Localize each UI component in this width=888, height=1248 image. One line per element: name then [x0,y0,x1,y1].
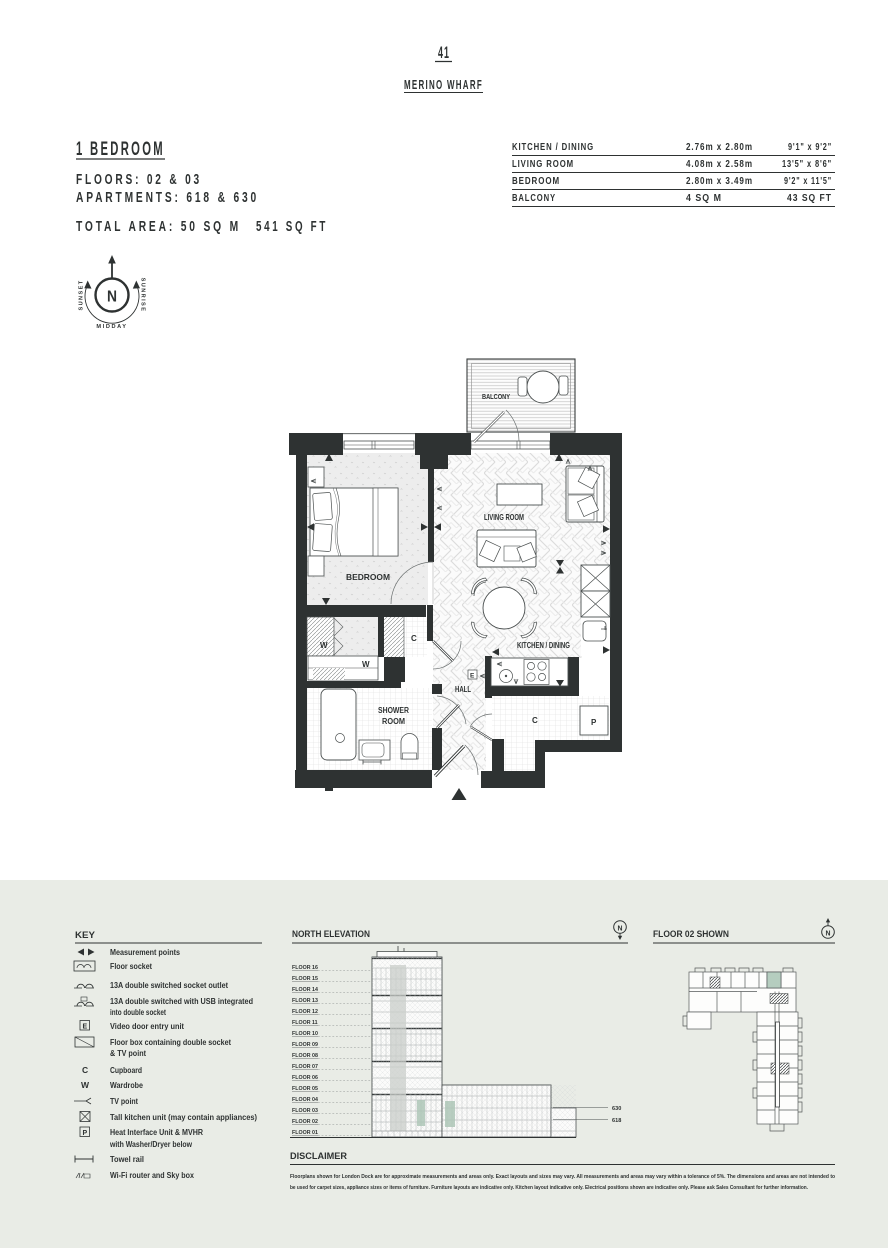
svg-text:9'2" x 11'5": 9'2" x 11'5" [784,175,832,187]
svg-text:FLOOR 13: FLOOR 13 [292,998,318,1004]
svg-text:be used for carpet sizes, appl: be used for carpet sizes, appliance size… [290,1185,808,1191]
svg-text:C: C [411,634,417,643]
svg-text:N: N [826,929,831,938]
svg-text:FLOOR 05: FLOOR 05 [292,1086,318,1092]
svg-text:13A double switched with USB i: 13A double switched with USB integrated [110,997,253,1006]
svg-text:541 SQ FT: 541 SQ FT [256,219,328,235]
svg-text:HALL: HALL [455,684,471,694]
svg-text:4 SQ M: 4 SQ M [686,192,722,204]
svg-text:N: N [107,289,117,306]
svg-text:FLOOR 16: FLOOR 16 [292,965,318,971]
svg-text:BEDROOM: BEDROOM [346,572,390,582]
svg-text:with Washer/Dryer below: with Washer/Dryer below [109,1140,193,1149]
svg-text:NORTH ELEVATION: NORTH ELEVATION [292,929,370,940]
svg-text:BALCONY: BALCONY [482,392,510,401]
svg-text:Floorplans shown for London Do: Floorplans shown for London Dock are for… [290,1174,835,1180]
svg-text:DISCLAIMER: DISCLAIMER [290,1151,347,1162]
svg-text:FLOOR 04: FLOOR 04 [292,1097,318,1103]
svg-text:FLOOR 03: FLOOR 03 [292,1108,318,1114]
svg-text:ROOM: ROOM [382,717,405,726]
svg-text:FLOOR 14: FLOOR 14 [292,987,318,993]
svg-text:2.80m x 3.49m: 2.80m x 3.49m [686,175,753,187]
svg-text:KEY: KEY [75,930,96,941]
svg-text:Measurement points: Measurement points [110,948,180,957]
svg-text:BALCONY: BALCONY [512,192,556,204]
svg-text:2.76m x 2.80m: 2.76m x 2.80m [686,141,753,153]
svg-text:E: E [83,1024,88,1031]
svg-text:13A double switched socket out: 13A double switched socket outlet [110,981,228,990]
svg-text:E: E [470,673,475,680]
svg-text:Video door entry unit: Video door entry unit [110,1022,184,1031]
svg-text:FLOOR 06: FLOOR 06 [292,1075,318,1081]
svg-text:1 BEDROOM: 1 BEDROOM [76,138,165,160]
svg-text:FLOOR 15: FLOOR 15 [292,976,318,982]
svg-text:LIVING ROOM: LIVING ROOM [512,158,574,170]
svg-text:FLOOR 10: FLOOR 10 [292,1031,318,1037]
svg-text:Cupboard: Cupboard [110,1066,142,1075]
svg-text:W: W [362,660,370,669]
svg-text:BEDROOM: BEDROOM [512,175,560,187]
svg-text:LIVING ROOM: LIVING ROOM [484,512,524,522]
svg-text:630: 630 [612,1106,621,1112]
svg-text:Wardrobe: Wardrobe [110,1081,143,1090]
svg-text:TV point: TV point [110,1097,138,1106]
svg-text:C: C [82,1065,88,1075]
svg-text:13'5" x 8'6": 13'5" x 8'6" [782,158,832,170]
svg-text:FLOOR 12: FLOOR 12 [292,1009,318,1015]
svg-text:FLOOR 07: FLOOR 07 [292,1064,318,1070]
svg-text:W: W [81,1080,90,1090]
svg-text:SUNRISE: SUNRISE [140,278,146,313]
svg-text:MIDDAY: MIDDAY [96,324,127,330]
svg-text:FLOOR 08: FLOOR 08 [292,1053,318,1059]
svg-text:Wi-Fi router and Sky box: Wi-Fi router and Sky box [110,1171,194,1180]
svg-text:SUNSET: SUNSET [79,279,85,310]
svg-text:N: N [618,924,623,933]
svg-text:Floor socket: Floor socket [110,962,152,971]
svg-text:FLOOR 11: FLOOR 11 [292,1020,318,1026]
svg-text:43 SQ FT: 43 SQ FT [787,192,832,204]
svg-text:Heat Interface Unit & MVHR: Heat Interface Unit & MVHR [110,1128,203,1137]
svg-text:P: P [591,718,597,727]
svg-text:SHOWER: SHOWER [378,706,409,715]
svg-text:4.08m x 2.58m: 4.08m x 2.58m [686,158,753,170]
svg-text:MERINO WHARF: MERINO WHARF [404,78,483,92]
svg-text:KITCHEN / DINING: KITCHEN / DINING [512,141,594,153]
svg-text:into double socket: into double socket [110,1008,166,1017]
svg-text:FLOORS: 02 & 03: FLOORS: 02 & 03 [76,172,202,188]
svg-text:41: 41 [438,43,450,62]
svg-text:FLOOR 02: FLOOR 02 [292,1119,318,1125]
svg-text:Tall kitchen unit (may contain: Tall kitchen unit (may contain appliance… [110,1113,257,1122]
svg-text:FLOOR 09: FLOOR 09 [292,1042,318,1048]
svg-text:& TV point: & TV point [110,1049,146,1058]
svg-text:9'1" x 9'2": 9'1" x 9'2" [788,141,832,153]
svg-text:618: 618 [612,1118,621,1124]
svg-text:Towel rail: Towel rail [110,1155,144,1164]
svg-text:W: W [320,641,328,650]
svg-text:FLOOR 02 SHOWN: FLOOR 02 SHOWN [653,929,729,940]
svg-text:KITCHEN / DINING: KITCHEN / DINING [517,640,570,650]
svg-text:TOTAL AREA: 50 SQ M: TOTAL AREA: 50 SQ M [76,219,241,235]
svg-text:C: C [532,716,538,725]
svg-text:P: P [83,1130,88,1137]
svg-text:FLOOR 01: FLOOR 01 [292,1130,318,1136]
svg-text:APARTMENTS: 618 & 630: APARTMENTS: 618 & 630 [76,190,259,206]
svg-text:Floor box containing double so: Floor box containing double socket [110,1038,231,1047]
